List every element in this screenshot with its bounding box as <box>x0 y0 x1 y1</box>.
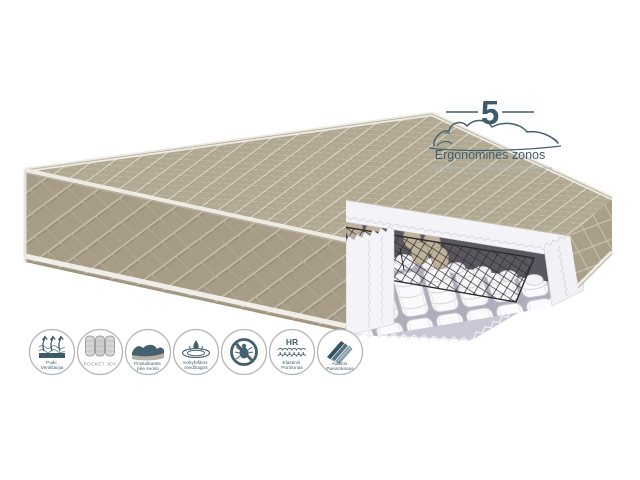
svg-text:Elastinis Porolonas: Elastinis Porolonas <box>281 360 303 371</box>
pocket-springs-icon <box>86 336 115 356</box>
ergonomic-zones-badge: 5 Ergonominės zonos <box>429 94 561 168</box>
hr-glyph-text: HR <box>286 337 298 347</box>
feature-label: Porolonas <box>281 365 303 371</box>
feature-label: Pasirinkimas <box>326 366 354 372</box>
foam-cross-section <box>346 226 394 336</box>
feature-icon-quality-materials: Kokybiškos medžiagos <box>174 330 219 375</box>
feature-icon-adapts-to-weight: Prisitaikantis prie svorio <box>126 330 171 375</box>
feature-icon-pocket-joy: POCKET JOY <box>78 330 123 375</box>
product-illustration: 5 Ergonominės zonos Puiki Ventiliacija <box>0 0 640 480</box>
feature-label: medžiagos <box>184 365 208 371</box>
feature-label: POCKET JOY <box>84 362 117 368</box>
zones-label: Ergonominės zonos <box>435 148 545 162</box>
feature-icon-anti-dust-mite <box>222 330 267 375</box>
svg-text:Kokybiškos medžiagos: Kokybiškos medžiagos <box>183 360 209 371</box>
feature-label: prie svorio <box>137 366 159 372</box>
feature-icon-hr-foam: HR Elastinis Porolonas <box>270 330 315 375</box>
svg-text:Prisitaikantis prie sv: Prisitaikantis prie svorio <box>134 361 162 372</box>
feature-icon-ventilation: Puiki Ventiliacija <box>30 330 75 375</box>
feature-label: Ventiliacija <box>41 365 64 371</box>
feature-icon-fabric-choice: Audinio Pasirinkimas <box>318 330 363 375</box>
mattress-product-image: 5 Ergonominės zonos Puiki Ventiliacija <box>0 0 640 480</box>
svg-text:POCKET JOY: POCKET JOY <box>84 362 117 368</box>
feature-icons-row: Puiki Ventiliacija POCKET JOY <box>30 330 363 375</box>
